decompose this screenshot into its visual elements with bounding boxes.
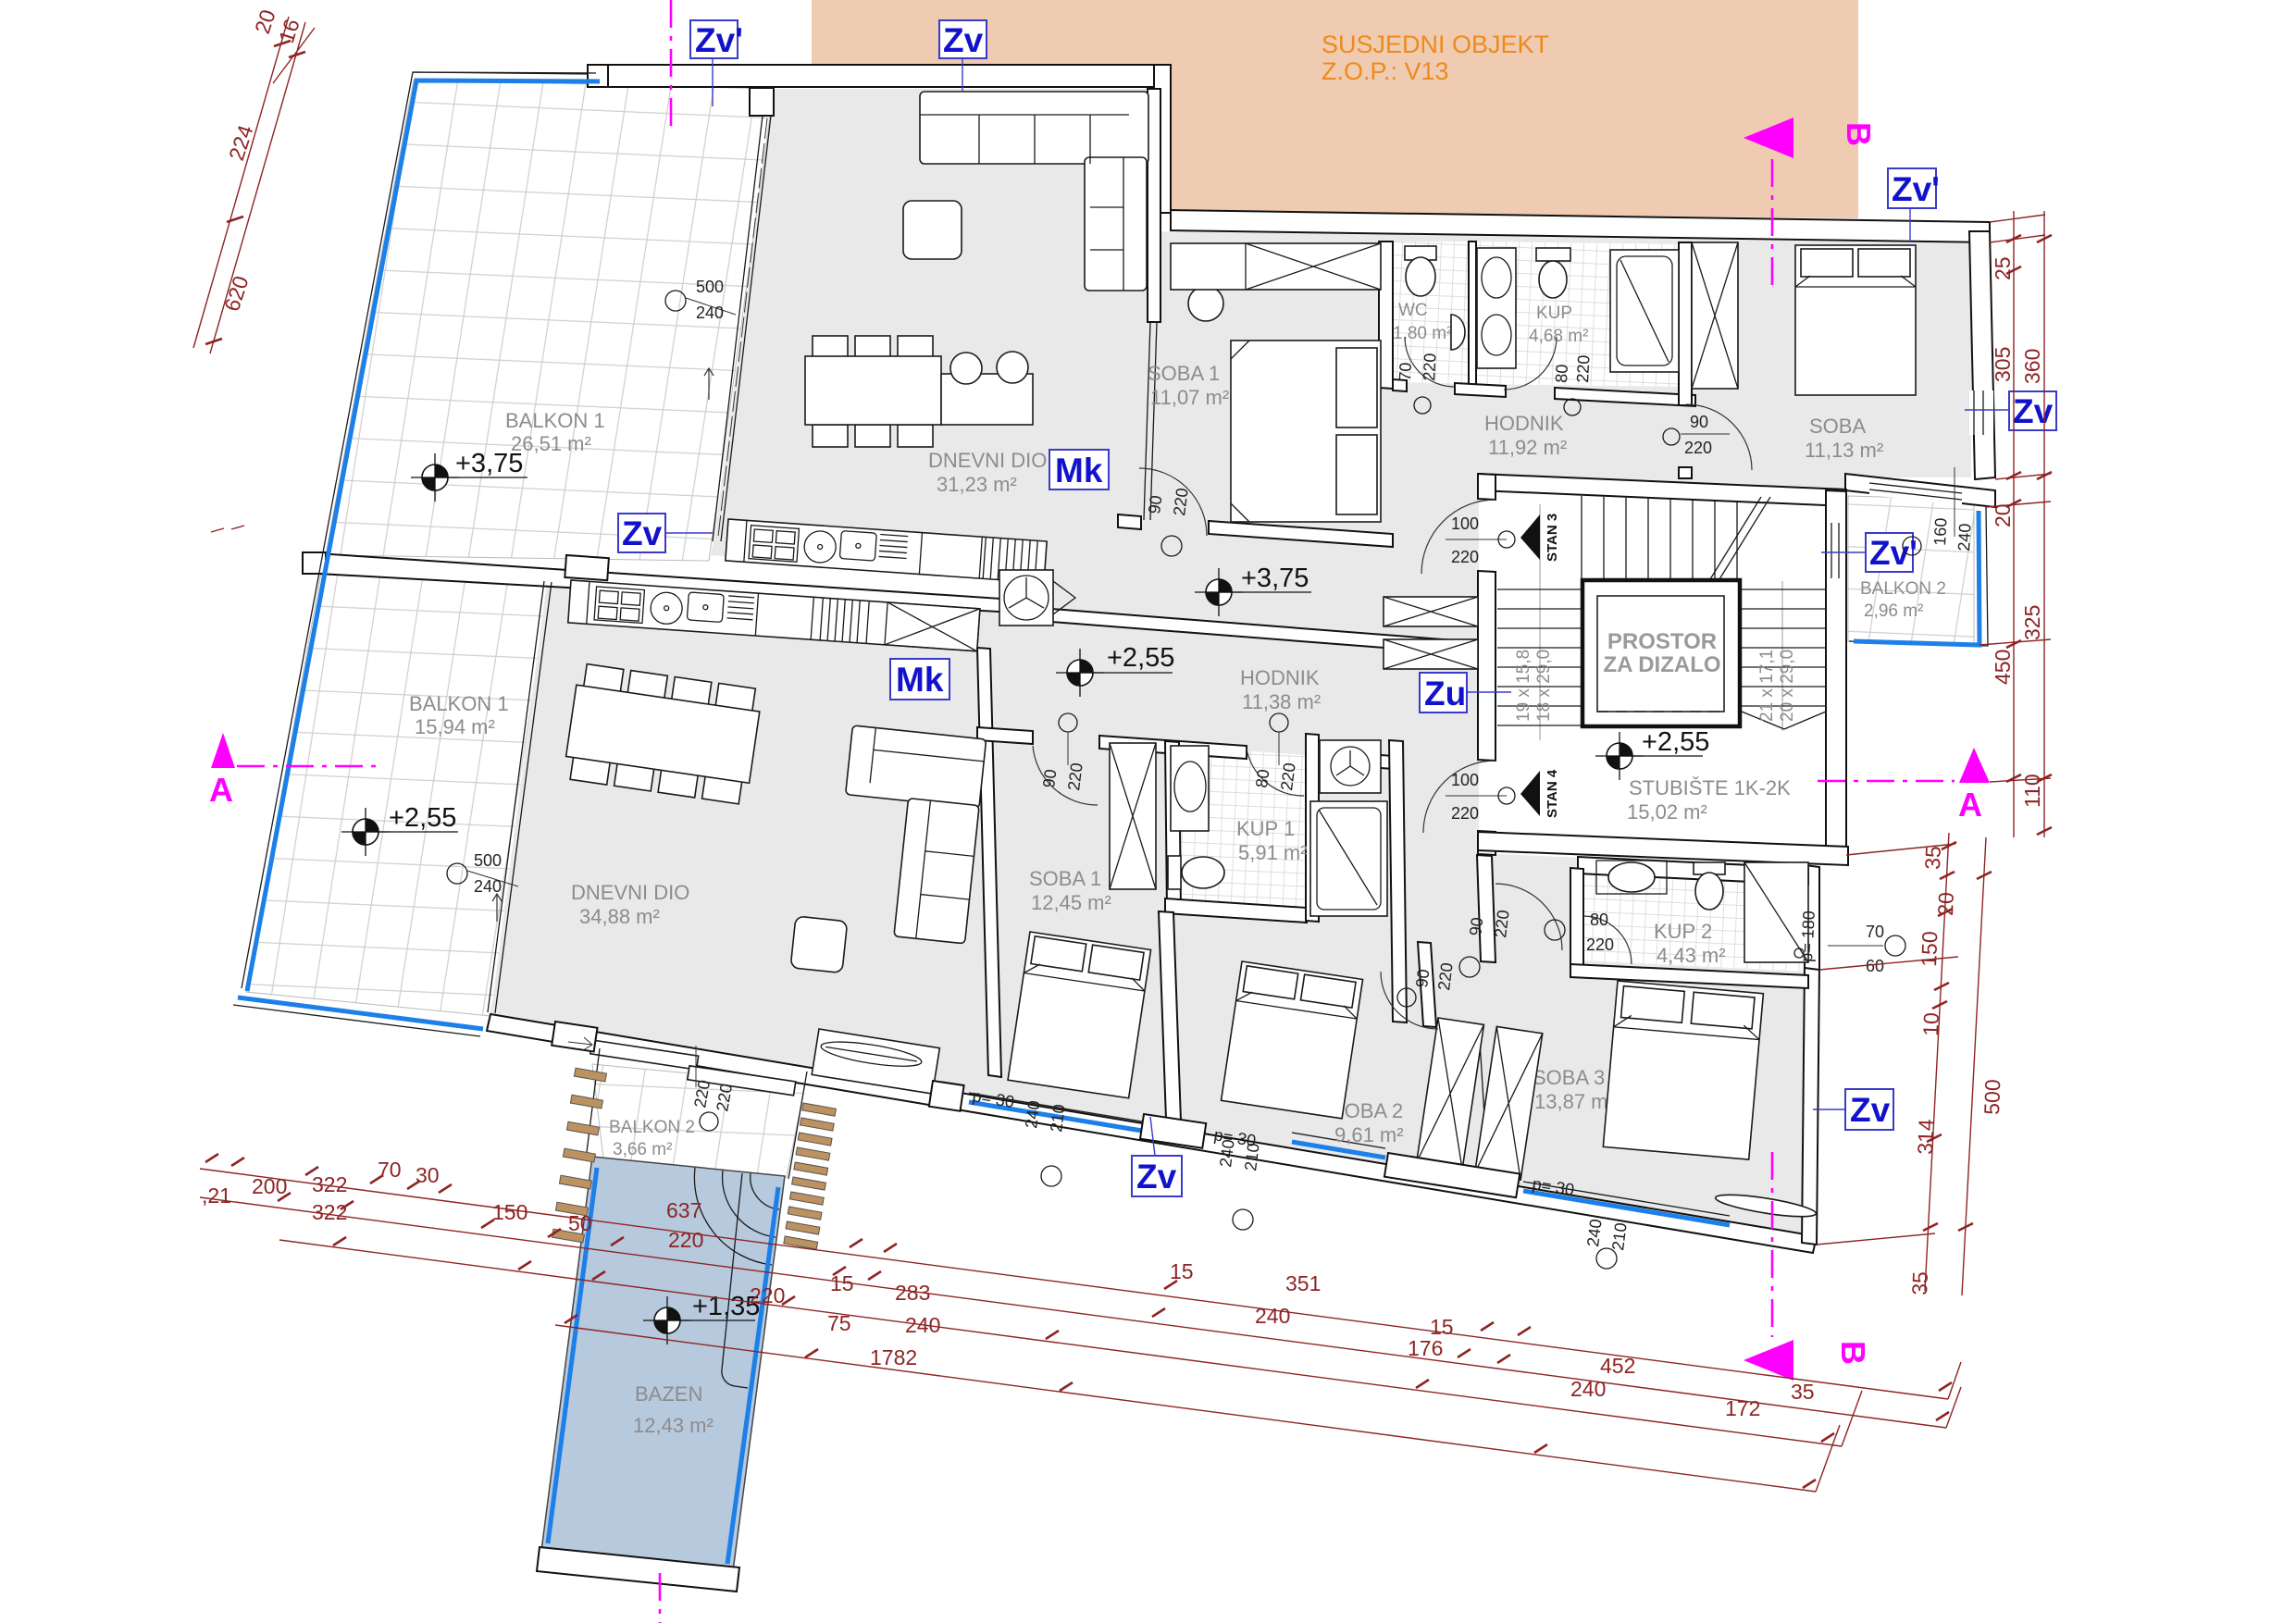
svg-text:90: 90 [1690,413,1708,431]
svg-text:Mk: Mk [896,661,944,699]
svg-text:220: 220 [750,1283,785,1307]
svg-text:Zv: Zv [943,21,984,59]
svg-text:220: 220 [1170,487,1192,516]
svg-text:500: 500 [696,278,724,296]
svg-text:50: 50 [568,1211,592,1235]
svg-text:90: 90 [1466,916,1486,936]
svg-text:70: 70 [378,1158,402,1182]
svg-text:11,07 m²: 11,07 m² [1150,386,1229,409]
svg-text:BALKON 2: BALKON 2 [609,1118,695,1137]
svg-text:ZA DIZALO: ZA DIZALO [1603,652,1720,677]
svg-text:+2,55: +2,55 [1107,643,1174,673]
svg-text:KUP 2: KUP 2 [1654,920,1712,943]
svg-text:12,45 m²: 12,45 m² [1031,891,1111,914]
svg-text:Zv': Zv' [695,21,743,59]
svg-text:452: 452 [1600,1354,1635,1378]
svg-text:100: 100 [1451,514,1479,533]
svg-text:11,92 m²: 11,92 m² [1488,436,1567,459]
svg-text:220: 220 [1451,548,1479,566]
svg-text:220: 220 [1064,762,1086,791]
svg-text:15,02 m²: 15,02 m² [1627,800,1707,824]
svg-text:KUP 1: KUP 1 [1236,817,1295,840]
svg-text:220: 220 [1573,354,1594,383]
svg-text:110: 110 [2020,774,2044,808]
svg-text:220: 220 [1420,353,1440,381]
svg-text:STUBIŠTE 1K-2K: STUBIŠTE 1K-2K [1629,776,1791,799]
svg-text:STAN 3: STAN 3 [1545,514,1560,562]
svg-text:322: 322 [312,1172,347,1196]
svg-text:90: 90 [1039,768,1060,788]
svg-text:283: 283 [895,1281,930,1305]
svg-text:A: A [209,771,233,809]
svg-text:Zu: Zu [1424,675,1466,712]
svg-text:322: 322 [312,1200,347,1224]
svg-text:15,94 m²: 15,94 m² [415,715,495,738]
svg-text:100: 100 [1451,771,1479,789]
svg-text:210: 210 [1047,1103,1069,1133]
svg-text:31,23 m²: 31,23 m² [937,473,1017,496]
svg-text:35: 35 [1920,846,1945,870]
svg-text:11,13 m²: 11,13 m² [1805,439,1883,462]
svg-text:BALKON 2: BALKON 2 [1860,579,1946,599]
svg-text:SOBA 3: SOBA 3 [1533,1066,1605,1089]
svg-text:220: 220 [1491,909,1513,938]
svg-text:75: 75 [827,1311,851,1335]
svg-text:325: 325 [2020,605,2044,640]
svg-text:Zv: Zv [2013,392,2054,430]
svg-text:240: 240 [1955,523,1975,551]
svg-text:240: 240 [1570,1377,1606,1401]
svg-text:220: 220 [1586,935,1614,954]
svg-text:176: 176 [1408,1336,1443,1360]
svg-text:SOBA 1: SOBA 1 [1148,362,1220,385]
svg-text:+2,55: +2,55 [1642,727,1709,757]
svg-text:PROSTOR: PROSTOR [1607,629,1717,654]
svg-text:SUSJEDNI OBJEKT: SUSJEDNI OBJEKT [1322,31,1549,58]
svg-text:B: B [1840,122,1878,146]
svg-text:A: A [1958,786,1982,824]
svg-text:+2,55: +2,55 [389,803,456,833]
svg-text:35: 35 [1907,1271,1932,1295]
svg-text:12,43 m²: 12,43 m² [633,1414,714,1437]
svg-text:240: 240 [1583,1218,1606,1247]
svg-text:+3,75: +3,75 [455,449,523,478]
svg-text:13,87 m²: 13,87 m² [1534,1090,1615,1113]
svg-text:220: 220 [1434,961,1457,991]
svg-text:,21: ,21 [202,1183,231,1208]
svg-text:DNEVNI DIO: DNEVNI DIO [928,449,1047,472]
svg-text:20 x 29,0: 20 x 29,0 [1778,650,1797,722]
svg-text:1,80 m²: 1,80 m² [1393,324,1452,343]
svg-text:HODNIK: HODNIK [1484,412,1564,435]
svg-text:500: 500 [1980,1079,2004,1115]
svg-text:Mk: Mk [1055,452,1103,489]
svg-text:450: 450 [1991,650,2015,685]
svg-text:Zv: Zv [1136,1158,1177,1196]
svg-text:Zv': Zv' [1892,170,1940,208]
svg-text:150: 150 [492,1200,527,1224]
svg-text:5,91 m²: 5,91 m² [1238,841,1308,864]
svg-text:10: 10 [1918,1012,1943,1036]
svg-text:80: 80 [1590,911,1608,929]
svg-text:351: 351 [1285,1271,1321,1295]
svg-text:19 x 15,8: 19 x 15,8 [1514,650,1533,722]
svg-text:90: 90 [1412,968,1433,988]
svg-text:70: 70 [1396,362,1415,381]
svg-text:200: 200 [252,1174,287,1198]
svg-text:20: 20 [1933,892,1958,916]
svg-text:305: 305 [1991,347,2015,382]
svg-text:210: 210 [1608,1221,1631,1251]
svg-text:25: 25 [1991,256,2015,280]
svg-text:220: 220 [1684,439,1712,457]
svg-text:SOBA 1: SOBA 1 [1029,867,1101,890]
svg-text:21 x 17,1: 21 x 17,1 [1757,650,1777,722]
svg-text:70: 70 [1866,923,1884,941]
svg-text:p= 180: p= 180 [1797,911,1818,963]
svg-text:3,66 m²: 3,66 m² [613,1140,672,1159]
svg-text:500: 500 [474,851,502,870]
svg-text:240: 240 [905,1313,940,1337]
svg-text:160: 160 [1930,517,1951,546]
svg-text:220: 220 [1451,804,1479,823]
svg-text:15: 15 [830,1271,854,1295]
svg-text:2,96 m²: 2,96 m² [1864,601,1923,621]
svg-text:15: 15 [1170,1259,1194,1283]
svg-text:240: 240 [1022,1099,1044,1129]
svg-text:314: 314 [1913,1119,1938,1155]
svg-text:BALKON 1: BALKON 1 [409,692,509,715]
svg-text:STAN 4: STAN 4 [1545,769,1560,818]
svg-text:HODNIK: HODNIK [1240,666,1320,689]
svg-text:150: 150 [1917,931,1942,967]
svg-text:1782: 1782 [870,1345,917,1369]
svg-text:BALKON 1: BALKON 1 [505,409,605,432]
svg-text:20: 20 [1991,503,2015,527]
svg-text:35: 35 [1791,1380,1815,1404]
svg-text:360: 360 [2020,349,2044,384]
svg-text:30: 30 [416,1163,440,1187]
svg-text:Zv': Zv' [1869,534,1917,572]
svg-text:172: 172 [1725,1396,1760,1420]
svg-text:11,38 m²: 11,38 m² [1242,690,1321,713]
svg-text:+3,75: +3,75 [1241,564,1309,593]
svg-text:90: 90 [1145,494,1165,514]
svg-text:60: 60 [1866,957,1884,975]
svg-text:240: 240 [696,304,724,322]
svg-text:DNEVNI DIO: DNEVNI DIO [571,881,689,904]
svg-text:80: 80 [1252,768,1272,788]
svg-text:240: 240 [1255,1304,1290,1328]
svg-text:637: 637 [666,1198,701,1222]
svg-text:B: B [1834,1341,1872,1365]
svg-text:BAZEN: BAZEN [635,1382,702,1406]
svg-text:4,68 m²: 4,68 m² [1529,327,1588,346]
svg-text:220: 220 [1277,762,1299,791]
svg-text:80: 80 [1552,364,1571,383]
svg-text:Zv: Zv [1850,1091,1891,1129]
svg-text:9,61 m²: 9,61 m² [1334,1123,1404,1146]
svg-text:220: 220 [668,1228,703,1252]
svg-text:WC: WC [1398,301,1428,320]
svg-text:240: 240 [474,877,502,896]
svg-text:Zv: Zv [622,514,663,552]
svg-text:4,43 m²: 4,43 m² [1657,944,1726,967]
svg-text:KUP: KUP [1536,304,1572,323]
svg-text:34,88 m²: 34,88 m² [579,905,660,928]
svg-text:18 x 29,0: 18 x 29,0 [1534,650,1554,722]
svg-text:SOBA: SOBA [1809,415,1866,438]
svg-text:Z.O.P.: V13: Z.O.P.: V13 [1322,57,1449,85]
